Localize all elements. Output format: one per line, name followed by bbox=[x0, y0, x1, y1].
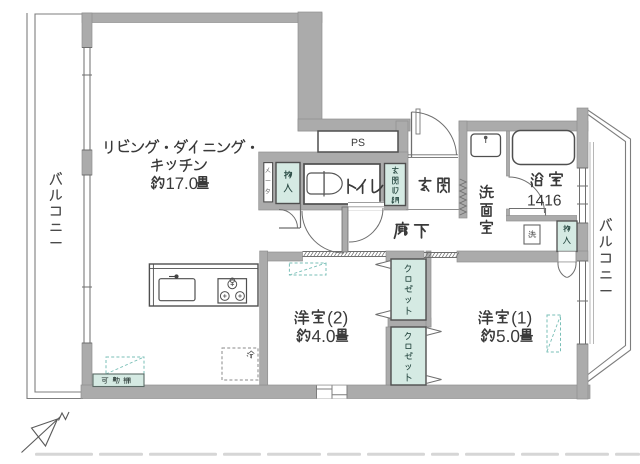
svg-text:(2): (2) bbox=[327, 307, 348, 327]
svg-text:5.0: 5.0 bbox=[496, 326, 520, 346]
svg-text:(1): (1) bbox=[511, 307, 532, 327]
svg-text:17.0: 17.0 bbox=[166, 174, 198, 193]
svg-text:4.0: 4.0 bbox=[312, 326, 336, 346]
svg-text:1416: 1416 bbox=[527, 193, 561, 210]
svg-text:PS: PS bbox=[351, 137, 365, 149]
